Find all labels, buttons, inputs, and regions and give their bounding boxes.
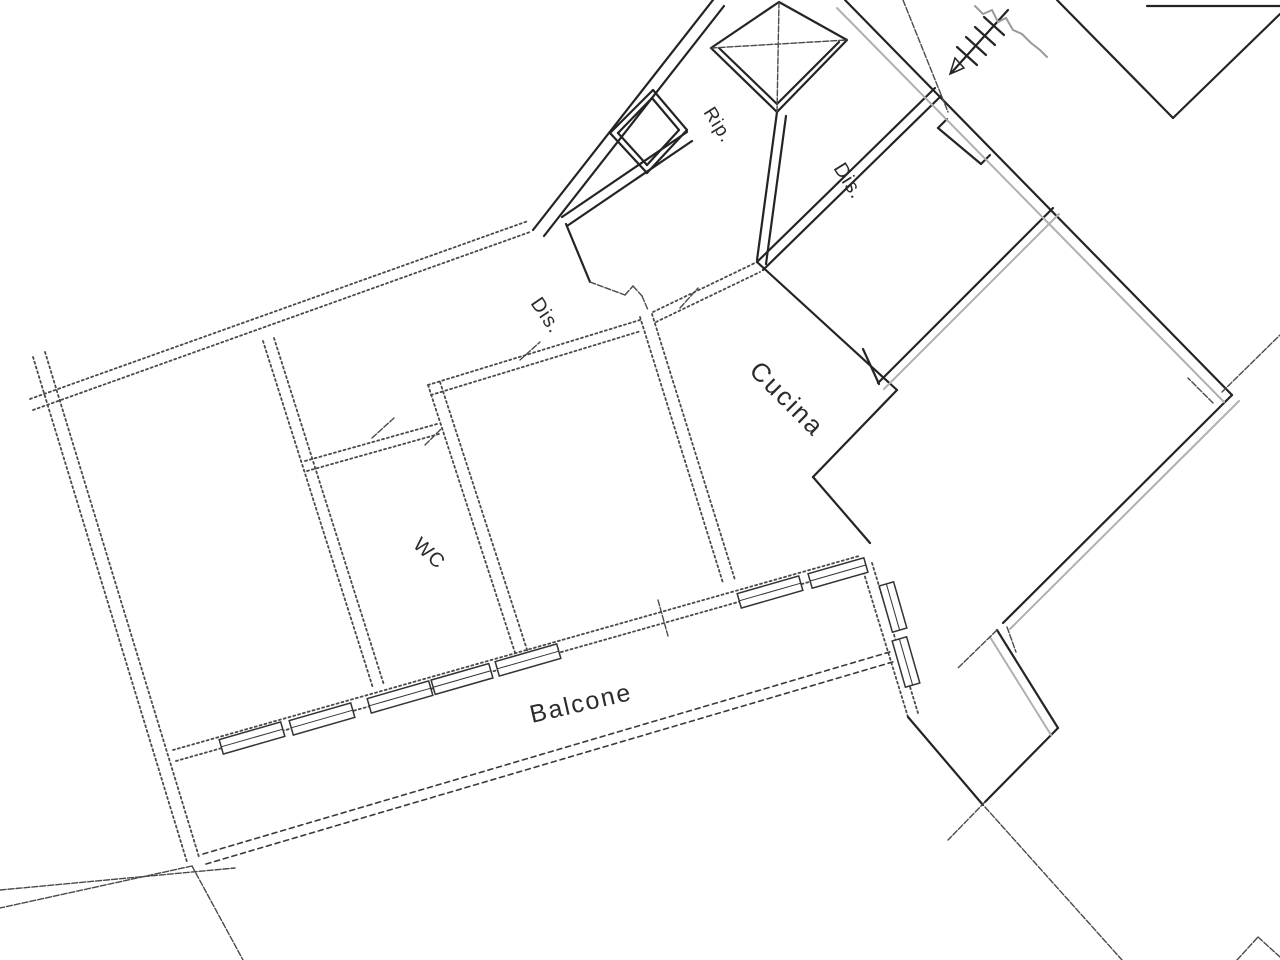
room-label-dis-corridor: Dis. [526,293,566,337]
gray-double-lines-line [837,8,1224,402]
rip-duct-square-line [618,133,647,165]
party-walls-line [845,0,1232,395]
apartment-partitions-line [274,338,384,685]
thin-lines-line [192,866,243,960]
thin-lines-line [590,282,625,295]
party-walls-line [813,477,870,543]
room-label-wc: WC [409,534,450,574]
elevator-shaft-box-line [777,42,839,104]
rip-duct-square-line [652,98,679,130]
party-walls-line [985,728,1058,802]
party-walls-line [997,630,1058,728]
elevator-shaft-box-line [711,48,777,112]
room-label-balcone: Balcone [527,678,635,729]
room-label-cucina: Cucina [744,355,831,442]
party-walls-line [766,116,786,264]
party-walls-line [562,132,687,217]
wall-line-layer [0,0,1280,960]
thin-lines-line [625,286,633,295]
thin-lines-line [1237,937,1258,960]
party-walls-line [1003,395,1232,623]
apartment-exterior-walls-line [33,232,530,410]
thin-lines-line [903,0,948,112]
party-walls-line [813,390,897,477]
apartment-partitions-line [263,341,373,688]
thin-lines-line [0,868,235,890]
apartment-partitions-line [640,317,723,583]
window-symbol [219,722,285,754]
gray-double-lines-line [884,214,1059,389]
thin-lines-line [372,418,394,438]
rip-duct-square-line [610,90,653,133]
elevator-shaft-box-line [719,48,777,104]
party-walls-line [533,0,713,230]
apartment-partitions-line [652,314,735,580]
rip-duct-square-line [647,130,687,173]
apartment-partitions-line [428,320,640,385]
party-walls-line [566,224,590,282]
thin-lines-line [1188,378,1213,403]
gray-double-lines-line [990,637,1051,735]
gray-double-lines-line [1010,401,1239,629]
thin-lines-line [658,600,668,636]
elevator-shaft-box-line [777,40,847,112]
apartment-exterior-walls-line [30,221,528,399]
apartment-partitions-line [431,331,641,395]
party-walls-line [878,208,1053,383]
stair-arrow-line [952,10,1008,72]
thin-lines-line [1258,937,1280,957]
party-walls-line [1173,14,1280,118]
apartment-partitions-line [440,382,532,665]
apartment-partitions-line [307,434,439,471]
room-label-rip: Rip. [699,104,737,147]
apartment-partitions-line [656,272,760,322]
balcony-parapet-line [203,651,893,854]
party-walls-line [908,717,983,805]
rip-duct-square-line [653,90,687,130]
apartment-partitions-line [653,262,757,312]
thin-lines-line [985,807,1122,960]
thin-lines-line [948,802,985,840]
elevator-shaft-cross-line [711,40,847,48]
thin-lines-line [520,342,540,360]
party-walls-line [544,6,724,236]
apartment-partitions-line [305,424,437,461]
party-walls-line [1057,0,1173,118]
party-walls-line [938,119,947,128]
thin-lines-line [633,286,642,296]
rip-duct-square-line [610,133,647,173]
elevator-shaft-cross-line [777,2,779,112]
thin-lines-line [958,630,997,668]
party-walls-line [757,112,777,260]
apartment-exterior-walls-line [45,352,199,857]
room-label-dis-landing: Dis. [829,159,868,203]
window-symbol [879,582,907,632]
thin-lines-line [1222,335,1280,392]
balcony-parapet-line [206,661,896,864]
thin-lines-line [642,296,648,310]
apartment-exterior-walls-line [33,357,187,862]
window-symbol [495,644,561,676]
floor-plan-drawing: Rip. Dis. Dis. Cucina WC Balcone [0,0,1280,960]
floor-plan-page: Rip. Dis. Dis. Cucina WC Balcone [0,0,1280,960]
pencil-scribble [975,6,1047,57]
